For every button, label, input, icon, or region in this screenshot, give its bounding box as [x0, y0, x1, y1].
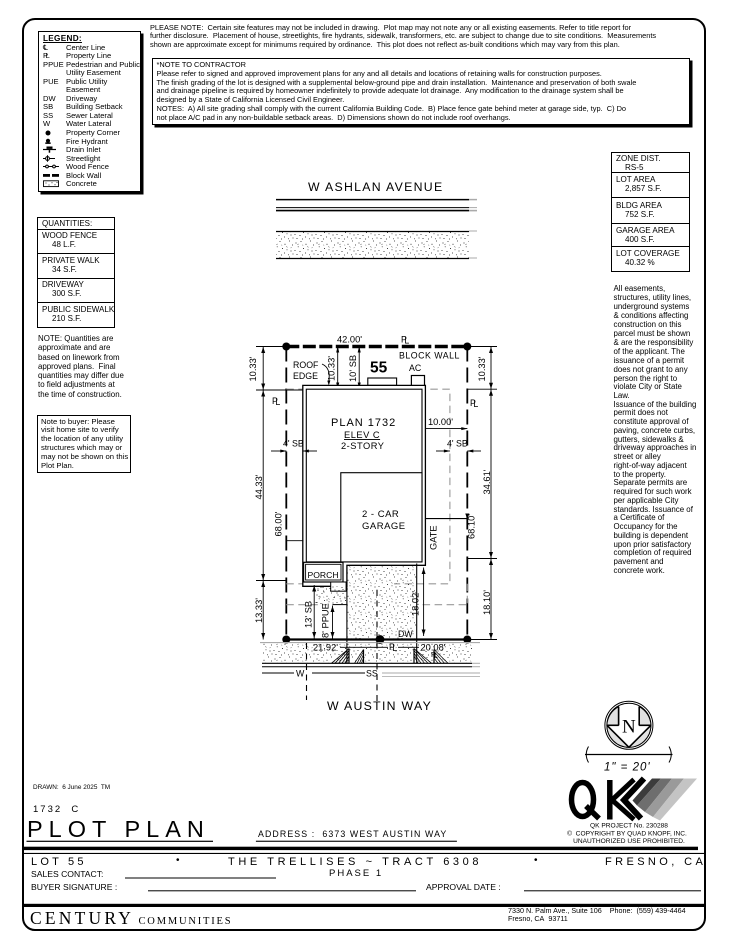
svg-text:68.10': 68.10': [467, 514, 477, 539]
svg-text:W: W: [296, 669, 305, 679]
svg-text:QK PROJECT No. 230288: QK PROJECT No. 230288: [590, 823, 668, 830]
svg-text:GARAGE: GARAGE: [362, 521, 406, 532]
svg-text:AC: AC: [409, 363, 422, 373]
svg-text:10.00': 10.00': [428, 417, 453, 427]
svg-text:34.61': 34.61': [482, 469, 492, 494]
svg-text:PLAN 1732: PLAN 1732: [331, 417, 396, 429]
svg-text:EDGE: EDGE: [293, 371, 318, 381]
svg-text:1" = 20': 1" = 20': [604, 762, 651, 774]
svg-text:42.00': 42.00': [337, 335, 362, 345]
svg-text:SS: SS: [366, 669, 378, 679]
svg-text:ROOF: ROOF: [293, 360, 319, 370]
svg-text:68.00': 68.00': [274, 511, 284, 536]
svg-text:10.33': 10.33': [477, 356, 487, 381]
svg-text:2 - CAR: 2 - CAR: [362, 509, 399, 520]
svg-text:4' SB: 4' SB: [447, 439, 468, 449]
svg-text:18.10': 18.10': [482, 590, 492, 615]
svg-text:DW: DW: [398, 629, 413, 639]
svg-text:18.02': 18.02': [411, 591, 421, 616]
svg-text:2-STORY: 2-STORY: [341, 441, 384, 451]
svg-text:8' PPUE: 8' PPUE: [321, 603, 331, 638]
svg-text:4' SB: 4' SB: [283, 439, 304, 449]
svg-text:W ASHLAN AVENUE: W ASHLAN AVENUE: [308, 180, 443, 194]
svg-text:55: 55: [370, 360, 388, 377]
svg-text:10.33': 10.33': [327, 356, 337, 381]
svg-text:L: L: [473, 399, 478, 409]
svg-text:ELEV C: ELEV C: [344, 430, 380, 440]
svg-text:BLOCK WALL: BLOCK WALL: [399, 351, 460, 361]
svg-text:10.33': 10.33': [248, 356, 258, 381]
svg-text:13.33': 13.33': [254, 598, 264, 623]
svg-text:N: N: [622, 717, 636, 738]
svg-text:L: L: [404, 336, 409, 346]
svg-text:GATE: GATE: [429, 525, 439, 550]
svg-text:PORCH: PORCH: [308, 570, 339, 580]
svg-text:L: L: [275, 397, 280, 407]
svg-text:UNAUTHORIZED USE PROHIBITED.: UNAUTHORIZED USE PROHIBITED.: [573, 838, 685, 845]
svg-text:10' SB: 10' SB: [348, 355, 358, 382]
svg-text:© COPYRIGHT BY QUAD KNOPF, IN: © COPYRIGHT BY QUAD KNOPF, INC.: [567, 829, 687, 837]
svg-text:13' SB: 13' SB: [304, 601, 314, 628]
svg-text:W AUSTIN WAY: W AUSTIN WAY: [327, 699, 432, 713]
svg-text:44.33': 44.33': [254, 474, 264, 499]
